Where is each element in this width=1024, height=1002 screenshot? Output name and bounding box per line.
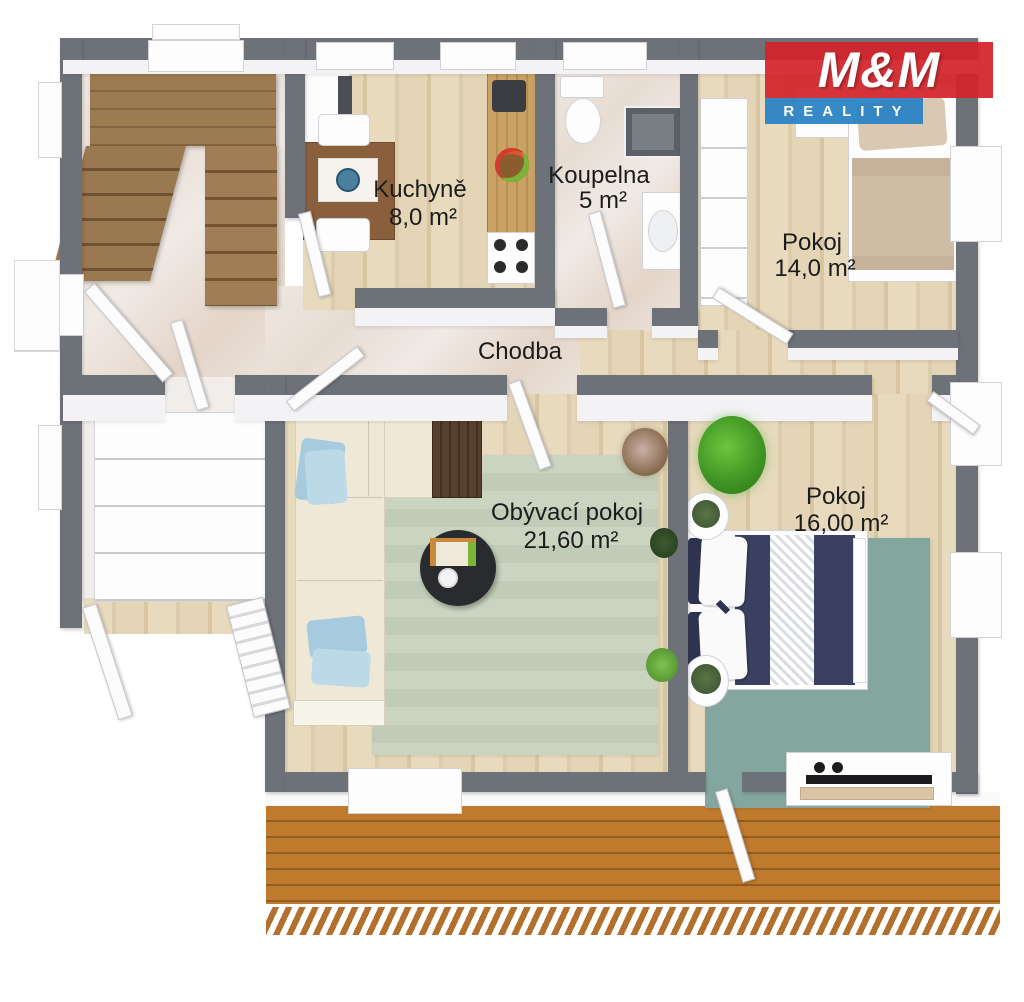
stove-burner: [494, 261, 506, 273]
window: [440, 42, 516, 70]
terrace-railing: [266, 904, 1000, 938]
room-label-pokoj16-name: Pokoj: [806, 483, 866, 511]
bed14-blanket: [852, 158, 954, 270]
coffee-table-tray: [430, 538, 476, 566]
bed16-runner: [770, 535, 814, 685]
toilet-bowl: [565, 98, 601, 144]
sofa-armrest: [293, 700, 385, 726]
entry-closet: [94, 412, 266, 602]
wall-segment: [788, 330, 958, 348]
room-label-pokoj14-area: 14,0 m²: [774, 255, 855, 283]
window-terrace-living: [348, 768, 462, 814]
logo-badge-top: M&M: [765, 42, 993, 98]
logo: M&M REALITY: [765, 42, 993, 124]
room-label-pokoj16-area: 16,00 m²: [794, 510, 889, 538]
room-label-obyvaci-name: Obývací pokoj: [491, 499, 643, 527]
stove-burner: [516, 261, 528, 273]
wall-segment: [948, 772, 978, 792]
window: [152, 24, 240, 40]
wall-segment: [680, 38, 698, 330]
stair-flight-right: [205, 146, 277, 306]
wall-segment: [555, 308, 607, 326]
wall-segment: [63, 375, 165, 395]
window: [563, 42, 647, 70]
logo-badge-bottom: REALITY: [765, 98, 923, 124]
wardrobe: [700, 98, 748, 306]
window: [950, 552, 1002, 638]
wall-segment: [355, 288, 555, 308]
window: [38, 82, 62, 158]
dried-plant: [622, 428, 668, 476]
wall-face: [788, 348, 958, 360]
nightstand-plant: [691, 664, 721, 694]
stove-burner: [494, 239, 506, 251]
window: [316, 42, 394, 70]
small-plant: [650, 528, 678, 558]
terrace-deck: [266, 806, 1000, 906]
stove-burner: [516, 239, 528, 251]
bed16-white-pillow: [698, 535, 748, 607]
wall-segment: [460, 772, 706, 792]
entry-porch-steps: [14, 260, 60, 352]
bench-rail: [806, 775, 932, 784]
wall-face: [652, 326, 698, 338]
sofa-cushion-line: [368, 420, 369, 496]
room-label-kuchyne-name: Kuchyně: [373, 176, 466, 204]
grass-plant: [646, 648, 678, 682]
logo-title: M&M: [818, 41, 940, 99]
wall-segment: [265, 375, 285, 792]
wall-segment: [652, 308, 698, 326]
wall-segment: [668, 395, 688, 774]
sofa-pillow: [304, 449, 348, 506]
logo-subtitle: REALITY: [783, 103, 910, 120]
bench-knob: [832, 762, 843, 773]
room-label-chodba: Chodba: [478, 338, 562, 366]
wall-face: [63, 395, 165, 421]
kitchen-chair-top: [318, 114, 370, 146]
room-label-kuchyne-area: 8,0 m²: [389, 204, 457, 232]
window: [148, 40, 244, 72]
wall-face: [698, 348, 718, 360]
kitchen-coffee-maker: [492, 80, 526, 112]
floorplan: Kuchyně 8,0 m² Koupelna 5 m² Pokoj 14,0 …: [0, 0, 1024, 1002]
kitchen-bowl: [336, 168, 360, 192]
sink-basin: [648, 210, 678, 252]
sofa-cushion-line: [297, 580, 383, 581]
bench-board: [800, 787, 934, 800]
bench-knob: [814, 762, 825, 773]
bed16-footboard: [853, 538, 866, 683]
window: [38, 425, 62, 510]
fern-plant: [698, 416, 766, 494]
kitchen-stove: [487, 232, 535, 284]
kitchen-chair-bottom: [316, 218, 370, 252]
room-label-koupelna-name: Koupelna: [548, 162, 649, 190]
stair-landing: [90, 74, 276, 146]
wall-face: [555, 326, 607, 338]
wall-face: [235, 395, 507, 421]
room-label-pokoj14-name: Pokoj: [782, 229, 842, 257]
wall-segment: [577, 375, 872, 395]
coffee-table-plate: [438, 568, 458, 588]
wall-segment: [698, 330, 718, 348]
wall-segment: [285, 772, 355, 792]
nightstand-plant: [692, 500, 720, 528]
sofa-side-table: [432, 418, 482, 498]
sofa-pillow: [311, 648, 371, 688]
wall-segment: [742, 772, 790, 792]
room-label-koupelna-area: 5 m²: [579, 187, 627, 215]
wall-face: [355, 308, 555, 326]
room-label-obyvaci-area: 21,60 m²: [524, 527, 619, 555]
kitchen-fruit-bowl: [495, 148, 529, 182]
shower-tray: [632, 114, 674, 150]
toilet-tank: [560, 76, 604, 98]
window: [950, 146, 1002, 242]
